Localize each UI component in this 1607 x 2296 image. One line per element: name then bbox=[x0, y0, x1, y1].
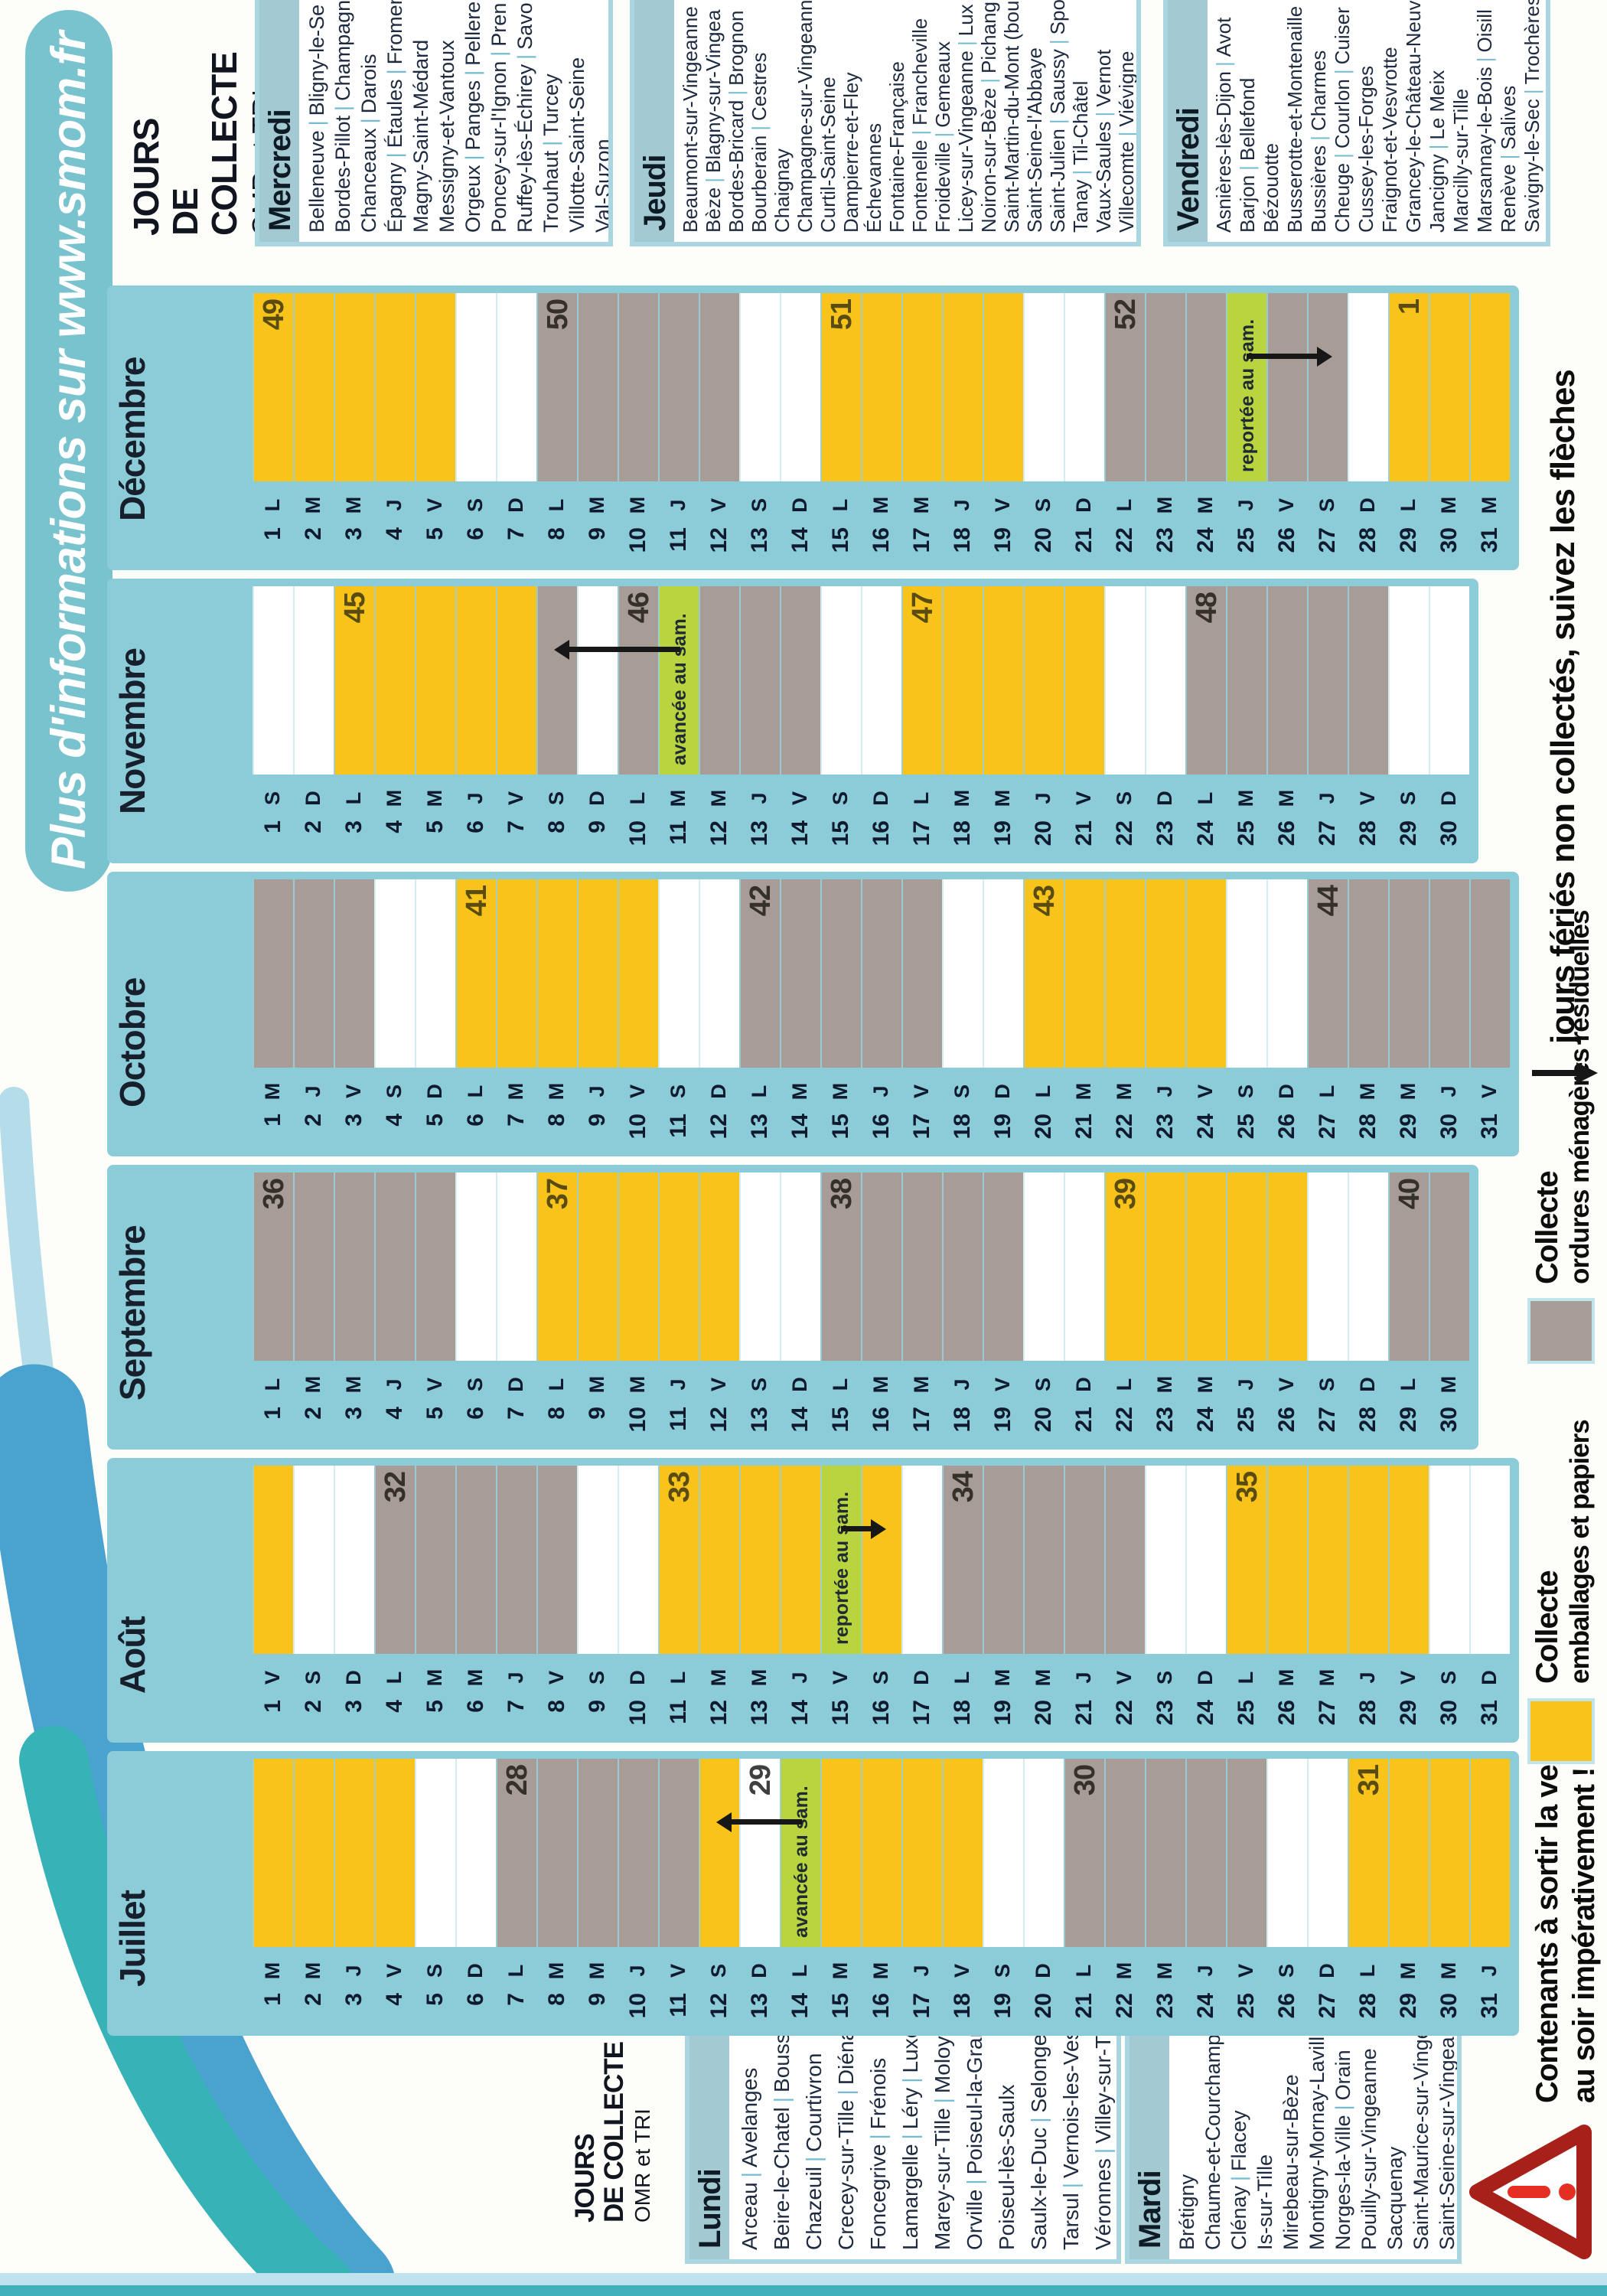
day-letter: J bbox=[901, 1955, 942, 1987]
day-number: 2 bbox=[293, 527, 334, 570]
day-letter: S bbox=[293, 1662, 334, 1694]
shift-arrow-head bbox=[554, 640, 569, 660]
day-number: 5 bbox=[415, 1700, 455, 1743]
day-row: 25V bbox=[1226, 1751, 1266, 2036]
day-row: 24L48 bbox=[1185, 579, 1226, 863]
day-letter: D bbox=[1348, 489, 1388, 521]
day-bar-empty bbox=[1064, 1172, 1104, 1361]
heading-jours: JOURS bbox=[127, 0, 166, 236]
day-number: 21 bbox=[1064, 527, 1104, 570]
day-number: 8 bbox=[536, 527, 577, 570]
day-letter: J bbox=[455, 782, 496, 814]
poster-canvas: Plus d'informations sur www.smom.fr JOUR… bbox=[0, 0, 1607, 2296]
day-letter: L bbox=[1226, 1662, 1266, 1694]
day-row: 29V bbox=[1388, 1458, 1429, 1743]
heading-omr-tri: OMR et TRI bbox=[629, 2042, 657, 2223]
list-item: Orville|Poiseul-la-Grange bbox=[959, 2033, 991, 2250]
day-row: 19V bbox=[983, 1165, 1023, 1450]
day-row: 23J bbox=[1145, 872, 1185, 1156]
day-number: 9 bbox=[577, 1700, 618, 1743]
day-letter: V bbox=[820, 1662, 861, 1694]
day-bar-omr bbox=[618, 1759, 658, 1947]
day-row: 12V bbox=[699, 285, 739, 570]
day-letter: M bbox=[536, 1955, 577, 1987]
day-row: 7V bbox=[496, 579, 536, 863]
list-item: Bézouotte bbox=[1260, 0, 1283, 233]
pipe-separator: | bbox=[383, 148, 406, 162]
day-row: 23D bbox=[1145, 579, 1185, 863]
day-bar-omr: 50 bbox=[536, 293, 577, 481]
day-bar-emballages bbox=[1104, 879, 1145, 1068]
day-bar-emballages: 33 bbox=[658, 1466, 699, 1654]
list-item: Messigny-et-Vantoux bbox=[434, 0, 460, 233]
day-letter: L bbox=[820, 1368, 861, 1401]
pipe-separator: | bbox=[738, 2167, 761, 2182]
commune-name: Le Meix bbox=[1426, 70, 1449, 140]
day-bar-empty bbox=[496, 293, 536, 481]
day-number: 6 bbox=[455, 527, 496, 570]
day-number: 16 bbox=[861, 527, 901, 570]
day-row: 24J bbox=[1185, 1751, 1226, 2036]
day-number: 2 bbox=[293, 1114, 334, 1156]
day-letter: D bbox=[577, 782, 618, 814]
week-number: 44 bbox=[1312, 885, 1345, 916]
pipe-separator: | bbox=[487, 47, 510, 61]
day-bar-omr bbox=[1429, 1172, 1469, 1361]
day-letter: L bbox=[253, 1368, 293, 1401]
commune-name: Bussières bbox=[1307, 145, 1330, 233]
day-row: 10J bbox=[618, 1751, 658, 2036]
day-number: 24 bbox=[1185, 1407, 1226, 1450]
day-bar-omr bbox=[1348, 586, 1388, 775]
day-letter: M bbox=[901, 489, 942, 521]
commune-name: Flacey bbox=[1227, 2110, 1250, 2171]
day-number: 30 bbox=[1429, 820, 1469, 863]
day-row: 7L28 bbox=[496, 1751, 536, 2036]
day-bar-omr bbox=[536, 1759, 577, 1947]
day-bar-emballages: 51 bbox=[820, 293, 861, 481]
day-bar-omr bbox=[1145, 1759, 1185, 1947]
day-row: 20S bbox=[1023, 285, 1064, 570]
day-row: 23S bbox=[1145, 1458, 1185, 1743]
day-letter: S bbox=[739, 489, 780, 521]
day-bar-emballages bbox=[577, 1172, 618, 1361]
day-row: 29M bbox=[1388, 872, 1429, 1156]
day-row: 28D bbox=[1348, 1165, 1388, 1450]
week-number: 47 bbox=[907, 592, 940, 623]
commune-name: Selongey bbox=[1027, 2033, 1051, 2112]
list-item: Magny-Saint-Médard bbox=[408, 0, 434, 233]
commune-name: Fraignot-et-Vesvrotte bbox=[1378, 47, 1401, 233]
commune-name: Lux bbox=[954, 4, 977, 36]
day-row: 12S bbox=[699, 1751, 739, 2036]
day-number: 14 bbox=[780, 820, 820, 863]
commune-name: Avelanges bbox=[738, 2068, 761, 2167]
day-row: 28J bbox=[1348, 1458, 1388, 1743]
day-letter: D bbox=[618, 1662, 658, 1694]
day-letter: M bbox=[699, 1662, 739, 1694]
day-bar-omr: 48 bbox=[1185, 586, 1226, 775]
day-bar-empty bbox=[374, 879, 415, 1068]
day-number: 17 bbox=[901, 820, 942, 863]
day-row: 30D bbox=[1429, 579, 1469, 863]
day-bar-emballages bbox=[334, 1759, 374, 1947]
day-bar-emballages bbox=[861, 1466, 901, 1654]
day-number: 13 bbox=[739, 820, 780, 863]
day-number: 24 bbox=[1185, 1114, 1226, 1156]
day-bar-empty bbox=[496, 1172, 536, 1361]
pipe-separator: | bbox=[383, 64, 406, 79]
day-letter: L bbox=[1104, 1368, 1145, 1401]
day-bar-emballages bbox=[334, 293, 374, 481]
day-bar-empty bbox=[942, 879, 983, 1068]
day-letter: D bbox=[780, 1368, 820, 1401]
day-row: 19M bbox=[983, 1458, 1023, 1743]
list-item: Sacquenay bbox=[1382, 2033, 1408, 2250]
day-row: 2M bbox=[293, 285, 334, 570]
month-column-octobre: Octobre1M2J3V4S5D6L417M8M9J10V11S12D13L4… bbox=[107, 872, 1519, 1156]
commune-name: Ruffey-lès-Échirey bbox=[513, 64, 536, 233]
commune-name: Saint-Julien bbox=[1046, 129, 1069, 233]
day-letter: D bbox=[983, 1075, 1023, 1107]
day-number: 1 bbox=[253, 1700, 293, 1743]
day-letter: S bbox=[253, 782, 293, 814]
day-letter: M bbox=[253, 1955, 293, 1987]
day-row: 8S bbox=[536, 579, 577, 863]
month-name: Août bbox=[112, 1616, 153, 1694]
commune-name: Trochères bbox=[1521, 0, 1543, 84]
day-number: 27 bbox=[1307, 1700, 1348, 1743]
day-number: 26 bbox=[1266, 820, 1307, 863]
day-row: 4V bbox=[374, 1751, 415, 2036]
day-letter: M bbox=[780, 1075, 820, 1107]
list-item: Saint-Maurice-sur-Vingeanne bbox=[1408, 2033, 1434, 2250]
day-number: 15 bbox=[820, 1407, 861, 1450]
commune-name: Barjon bbox=[1236, 175, 1259, 233]
commune-name: Bèze bbox=[702, 188, 725, 233]
day-letter: M bbox=[455, 1662, 496, 1694]
commune-name: Dampierre-et-Fley bbox=[839, 73, 862, 233]
commune-name: Vernot bbox=[1092, 50, 1115, 107]
day-number: 3 bbox=[334, 1407, 374, 1450]
list-item: Poncey-sur-l'Ignon|Pren bbox=[486, 0, 512, 233]
commune-name: Belleneuve bbox=[305, 130, 328, 233]
day-letter: M bbox=[1104, 1075, 1145, 1107]
day-bar-omr bbox=[901, 879, 942, 1068]
week-number: 43 bbox=[1028, 885, 1061, 916]
day-row: 31V bbox=[1469, 872, 1510, 1156]
day-row: 4J bbox=[374, 285, 415, 570]
commune-name: Magny-Saint-Médard bbox=[409, 40, 432, 233]
day-number: 29 bbox=[1388, 1993, 1429, 2036]
day-bar-omr bbox=[1429, 879, 1469, 1068]
day-letter: M bbox=[1266, 782, 1307, 814]
day-bar-empty bbox=[293, 1466, 334, 1654]
commune-name: Saint-Maurice-sur-Vingeanne bbox=[1410, 2033, 1433, 2250]
day-letter: L bbox=[1348, 1955, 1388, 1987]
day-letter: J bbox=[334, 1955, 374, 1987]
list-item: Is-sur-Tille bbox=[1252, 2033, 1278, 2250]
day-number: 11 bbox=[658, 527, 699, 570]
day-letter: V bbox=[983, 1368, 1023, 1401]
day-row: 14J bbox=[780, 1458, 820, 1743]
legend-emballages-subtitle: emballages et papiers bbox=[1564, 1420, 1596, 1684]
day-number: 27 bbox=[1307, 1114, 1348, 1156]
commune-name: Foncegrive bbox=[866, 2144, 890, 2250]
commune-name: Licey-sur-Vingeanne bbox=[954, 51, 977, 233]
day-row: 16M bbox=[861, 1165, 901, 1450]
day-number: 9 bbox=[577, 527, 618, 570]
list-item: Bordes-Pillot|Champagn bbox=[330, 0, 356, 233]
day-number: 1 bbox=[253, 527, 293, 570]
commune-name: Courlon bbox=[1331, 79, 1354, 148]
day-letter: M bbox=[1429, 1368, 1469, 1401]
day-bar-omr: 44 bbox=[1307, 879, 1348, 1068]
commune-name: Avot bbox=[1212, 18, 1235, 57]
month-name: Septembre bbox=[112, 1225, 153, 1401]
day-letter: S bbox=[577, 1662, 618, 1694]
day-bar-omr: 28 bbox=[496, 1759, 536, 1947]
day-letter: M bbox=[861, 1368, 901, 1401]
day-bar-emballages bbox=[820, 1759, 861, 1947]
day-letter: J bbox=[1226, 489, 1266, 521]
day-number: 7 bbox=[496, 1407, 536, 1450]
day-letter: M bbox=[1145, 489, 1185, 521]
day-bar-omr: 30 bbox=[1064, 1759, 1104, 1947]
day-bar-shifted: avancée au sam. bbox=[780, 1759, 820, 1947]
day-number: 5 bbox=[415, 1114, 455, 1156]
day-number: 21 bbox=[1064, 1993, 1104, 2036]
day-number: 12 bbox=[699, 1700, 739, 1743]
day-row: 18J bbox=[942, 1165, 983, 1450]
day-bar-emballages: 37 bbox=[536, 1172, 577, 1361]
day-number: 3 bbox=[334, 820, 374, 863]
week-number: 34 bbox=[947, 1472, 980, 1502]
day-bar-omr bbox=[983, 1466, 1023, 1654]
day-number: 11 bbox=[658, 1700, 699, 1743]
day-number: 24 bbox=[1185, 1700, 1226, 1743]
day-number: 22 bbox=[1104, 820, 1145, 863]
day-number: 15 bbox=[820, 527, 861, 570]
day-row: 11J bbox=[658, 1165, 699, 1450]
list-item: Renève|Salives bbox=[1497, 0, 1521, 233]
day-row: 22M bbox=[1104, 1751, 1145, 2036]
day-bar-omr bbox=[415, 1172, 455, 1361]
day-letter: M bbox=[901, 1368, 942, 1401]
day-letter: S bbox=[1226, 1075, 1266, 1107]
day-bar-empty bbox=[577, 1466, 618, 1654]
day-bar-emballages bbox=[861, 293, 901, 481]
shift-arrow bbox=[730, 1819, 802, 1825]
commune-name: Pellere bbox=[461, 2, 484, 66]
week-number: 45 bbox=[339, 592, 372, 623]
day-letter: L bbox=[1388, 489, 1429, 521]
commune-name: Turcey bbox=[539, 73, 562, 136]
day-number: 11 bbox=[658, 1114, 699, 1156]
day-bar-emballages bbox=[496, 879, 536, 1068]
day-number: 20 bbox=[1023, 1407, 1064, 1450]
day-letter: M bbox=[1226, 782, 1266, 814]
day-bar-empty bbox=[1145, 586, 1185, 775]
day-number: 9 bbox=[577, 1114, 618, 1156]
day-letter: D bbox=[496, 1368, 536, 1401]
day-letter: D bbox=[293, 782, 334, 814]
commune-name: Beire-le-Chatel bbox=[770, 2107, 794, 2250]
day-number: 9 bbox=[577, 1407, 618, 1450]
pipe-separator: | bbox=[963, 2174, 986, 2189]
list-item: Crecey-sur-Tille|Diénay bbox=[830, 2033, 862, 2250]
pipe-separator: | bbox=[1307, 131, 1330, 145]
shift-arrow bbox=[1247, 354, 1319, 359]
day-bar-omr: 40 bbox=[1388, 1172, 1429, 1361]
day-row: 13M bbox=[739, 1458, 780, 1743]
day-row: 3M bbox=[334, 1165, 374, 1450]
day-number: 29 bbox=[1388, 1700, 1429, 1743]
list-item: Chaignay bbox=[771, 0, 794, 233]
commune-name: Véronnes bbox=[1091, 2158, 1115, 2250]
day-bar-emballages bbox=[618, 1172, 658, 1361]
day-bar-emballages bbox=[1266, 1172, 1307, 1361]
day-bar-empty bbox=[1104, 586, 1145, 775]
day-number: 17 bbox=[901, 1700, 942, 1743]
day-number: 12 bbox=[699, 1114, 739, 1156]
day-bar-emballages bbox=[1307, 1466, 1348, 1654]
commune-name: Viévigne bbox=[1115, 51, 1138, 127]
day-number: 6 bbox=[455, 1993, 496, 2036]
day-letter: V bbox=[1348, 782, 1388, 814]
day-row: 28D bbox=[1348, 285, 1388, 570]
day-number: 25 bbox=[1226, 1700, 1266, 1743]
day-bar-emballages bbox=[618, 879, 658, 1068]
list-item: Bordes-Bricard|Brognon bbox=[725, 0, 748, 233]
day-row: 30J bbox=[1429, 872, 1469, 1156]
day-row: 1L36 bbox=[253, 1165, 293, 1450]
commune-name: Tanay bbox=[1069, 180, 1092, 233]
day-row: 24D bbox=[1185, 1458, 1226, 1743]
pipe-separator: | bbox=[898, 2129, 922, 2144]
day-row: 17M bbox=[901, 1165, 942, 1450]
day-letter: S bbox=[374, 1075, 415, 1107]
commune-name: Villotte-Saint-Seine bbox=[566, 57, 588, 233]
day-bar-omr bbox=[1185, 1759, 1226, 1947]
pipe-separator: | bbox=[1331, 64, 1354, 79]
day-row: 13L42 bbox=[739, 872, 780, 1156]
day-bar-emballages bbox=[739, 1466, 780, 1654]
day-row: 22L39 bbox=[1104, 1165, 1145, 1450]
day-number: 4 bbox=[374, 1114, 415, 1156]
list-item: Bourberain|Cestres bbox=[748, 0, 771, 233]
day-letter: V bbox=[1226, 1955, 1266, 1987]
day-bar-omr bbox=[536, 586, 577, 775]
week-number: 29 bbox=[745, 1765, 777, 1795]
list-item: Véronnes|Villey-sur-Tille bbox=[1087, 2033, 1120, 2250]
day-bar-emballages bbox=[293, 293, 334, 481]
week-number: 42 bbox=[745, 885, 777, 916]
commune-name: Panges bbox=[461, 80, 484, 151]
commune-name: Saulx-le-Duc bbox=[1027, 2128, 1051, 2250]
day-letter: M bbox=[1429, 489, 1469, 521]
list-item: Montigny-Mornay-Lavilleneuve bbox=[1304, 2033, 1330, 2250]
week-number: 46 bbox=[623, 592, 656, 623]
day-number: 25 bbox=[1226, 1114, 1266, 1156]
commune-name: Fontenelle bbox=[908, 140, 931, 233]
day-row: 16S bbox=[861, 1458, 901, 1743]
day-letter: S bbox=[1104, 782, 1145, 814]
day-letter: V bbox=[1064, 782, 1104, 814]
day-row: 23M bbox=[1145, 285, 1185, 570]
day-row: 16M bbox=[861, 285, 901, 570]
day-bar-emballages bbox=[415, 293, 455, 481]
day-letter: L bbox=[658, 1662, 699, 1694]
warning-note: Contenants à sortir la veille au soir im… bbox=[1529, 1726, 1602, 2103]
day-number: 8 bbox=[536, 1407, 577, 1450]
day-number: 26 bbox=[1266, 1407, 1307, 1450]
day-number: 3 bbox=[334, 1114, 374, 1156]
day-number: 28 bbox=[1348, 1700, 1388, 1743]
list-item: Épagny|Étaules|Fromen bbox=[382, 0, 408, 233]
day-bar-omr bbox=[1307, 293, 1348, 481]
collection-days-heading-left: JOURS DE COLLECTE OMR et TRI bbox=[571, 2042, 657, 2223]
day-bar-emballages bbox=[1064, 879, 1104, 1068]
legend-feries: jours fériés non collectés, suivez les f… bbox=[1544, 370, 1583, 1044]
day-letter: M bbox=[739, 1662, 780, 1694]
day-bar-omr bbox=[1145, 293, 1185, 481]
shift-arrow-head bbox=[1317, 347, 1332, 367]
day-letter: S bbox=[415, 1955, 455, 1987]
day-row: 23M bbox=[1145, 1165, 1185, 1450]
day-number: 1 bbox=[253, 1993, 293, 2036]
day-number: 18 bbox=[942, 820, 983, 863]
day-letter: J bbox=[658, 489, 699, 521]
day-number: 31 bbox=[1469, 527, 1510, 570]
day-letter: M bbox=[1388, 1075, 1429, 1107]
day-letter: M bbox=[334, 489, 374, 521]
day-row: 30M bbox=[1429, 1165, 1469, 1450]
day-row: 27L44 bbox=[1307, 872, 1348, 1156]
commune-name: Villey-sur-Tille bbox=[1091, 2033, 1115, 2144]
list-item: Villotte-Saint-Seine bbox=[564, 0, 590, 233]
day-letter: M bbox=[577, 1368, 618, 1401]
day-row: 22L52 bbox=[1104, 285, 1145, 570]
day-number: 17 bbox=[901, 1114, 942, 1156]
day-number: 22 bbox=[1104, 1700, 1145, 1743]
day-bar-emballages bbox=[1023, 586, 1064, 775]
list-item: Barjon|Bellefond bbox=[1236, 0, 1260, 233]
day-letter: M bbox=[1145, 1368, 1185, 1401]
day-row: 17L47 bbox=[901, 579, 942, 863]
day-bar-empty bbox=[1226, 879, 1266, 1068]
day-letter: M bbox=[1185, 489, 1226, 521]
commune-name: Villecomte bbox=[1115, 142, 1138, 233]
day-bar-omr bbox=[901, 1172, 942, 1361]
commune-list-vendredi: VendrediAsnières-lès-Dijon|AvotBarjon|Be… bbox=[1163, 0, 1550, 246]
week-number: 50 bbox=[542, 299, 575, 330]
list-item: Savigny-le-Sec|Trochères bbox=[1521, 0, 1544, 233]
day-number: 7 bbox=[496, 1700, 536, 1743]
day-bar-empty bbox=[1023, 1759, 1064, 1947]
day-number: 2 bbox=[293, 1993, 334, 2036]
day-number: 26 bbox=[1266, 1114, 1307, 1156]
day-row: 31M bbox=[1469, 285, 1510, 570]
day-bar-emballages bbox=[1064, 586, 1104, 775]
commune-name: Fromen bbox=[383, 0, 406, 64]
day-letter: J bbox=[374, 1368, 415, 1401]
day-row: 9J bbox=[577, 872, 618, 1156]
pipe-separator: | bbox=[802, 2152, 826, 2167]
day-row: 4J bbox=[374, 1165, 415, 1450]
day-number: 16 bbox=[861, 1114, 901, 1156]
day-letter: D bbox=[1064, 489, 1104, 521]
